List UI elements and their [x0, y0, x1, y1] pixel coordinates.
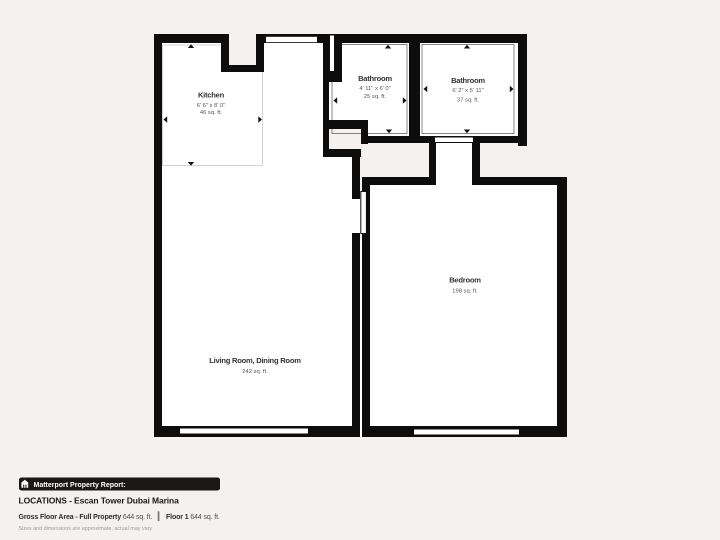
svg-text:46 sq. ft.: 46 sq. ft. [200, 110, 223, 116]
svg-text:6' 2" x 5' 11": 6' 2" x 5' 11" [452, 88, 483, 94]
svg-text:Floor 1 644 sq. ft.: Floor 1 644 sq. ft. [166, 514, 220, 521]
svg-text:Matterport Property Report:: Matterport Property Report: [34, 482, 126, 489]
svg-text:Living Room, Dining Room: Living Room, Dining Room [209, 356, 301, 365]
svg-text:Bedroom: Bedroom [449, 275, 481, 284]
svg-text:4' 11" x 6' 0": 4' 11" x 6' 0" [359, 86, 390, 92]
svg-text:37 sq. ft.: 37 sq. ft. [457, 98, 480, 104]
svg-text:Bathroom: Bathroom [451, 76, 485, 85]
svg-text:Kitchen: Kitchen [198, 90, 225, 99]
svg-text:25 sq. ft.: 25 sq. ft. [364, 94, 387, 100]
svg-text:LOCATIONS - Escan Tower Dubai: LOCATIONS - Escan Tower Dubai Marina [19, 496, 180, 506]
svg-text:242 sq. ft.: 242 sq. ft. [242, 369, 268, 375]
svg-text:6' 6" x 8' 0": 6' 6" x 8' 0" [197, 103, 226, 109]
svg-text:Bathroom: Bathroom [358, 74, 392, 83]
svg-text:198 sq. ft.: 198 sq. ft. [452, 289, 478, 295]
svg-text:Gross Floor Area - Full Proper: Gross Floor Area - Full Property 644 sq.… [19, 514, 153, 521]
svg-text:Sizes and dimensions are appro: Sizes and dimensions are approximate, ac… [19, 526, 153, 532]
